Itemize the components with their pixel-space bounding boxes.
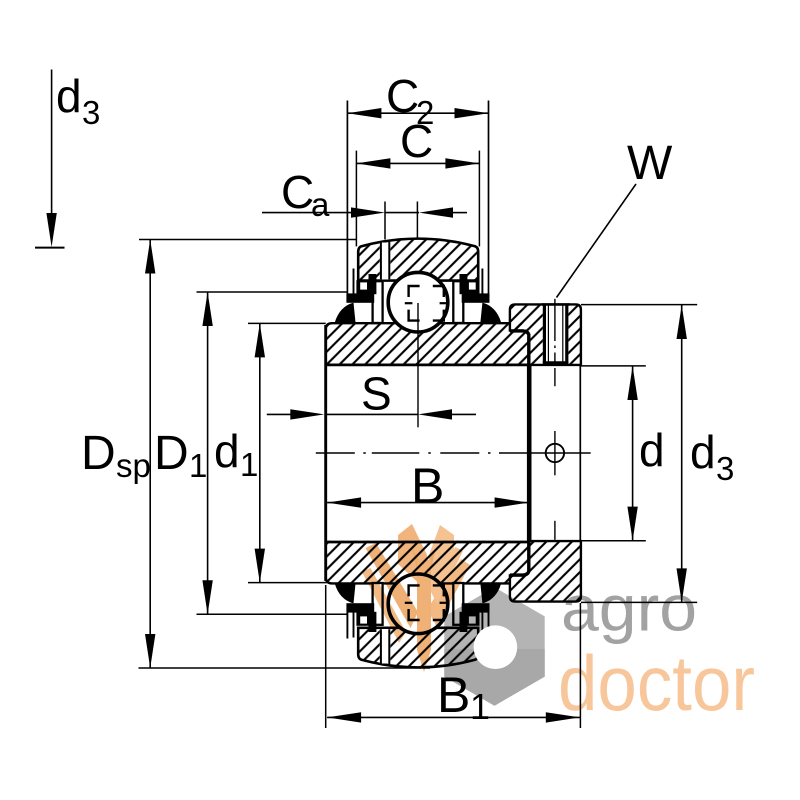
svg-text:3: 3 <box>82 94 100 131</box>
svg-text:doctor: doctor <box>558 639 755 727</box>
svg-text:D: D <box>154 427 189 480</box>
svg-text:a: a <box>311 186 330 223</box>
svg-text:sp: sp <box>116 447 151 484</box>
svg-text:d: d <box>690 426 716 478</box>
svg-text:D: D <box>81 427 116 480</box>
svg-text:d: d <box>639 424 665 476</box>
svg-text:agro: agro <box>561 572 697 645</box>
svg-text:d: d <box>56 70 82 122</box>
svg-text:C: C <box>281 166 314 218</box>
svg-text:1: 1 <box>240 446 258 483</box>
svg-text:d: d <box>214 425 240 477</box>
svg-text:S: S <box>361 368 392 420</box>
svg-text:W: W <box>627 137 673 190</box>
svg-text:B: B <box>411 458 444 514</box>
svg-text:C: C <box>400 115 433 167</box>
svg-text:3: 3 <box>716 450 734 487</box>
svg-text:1: 1 <box>189 447 207 484</box>
